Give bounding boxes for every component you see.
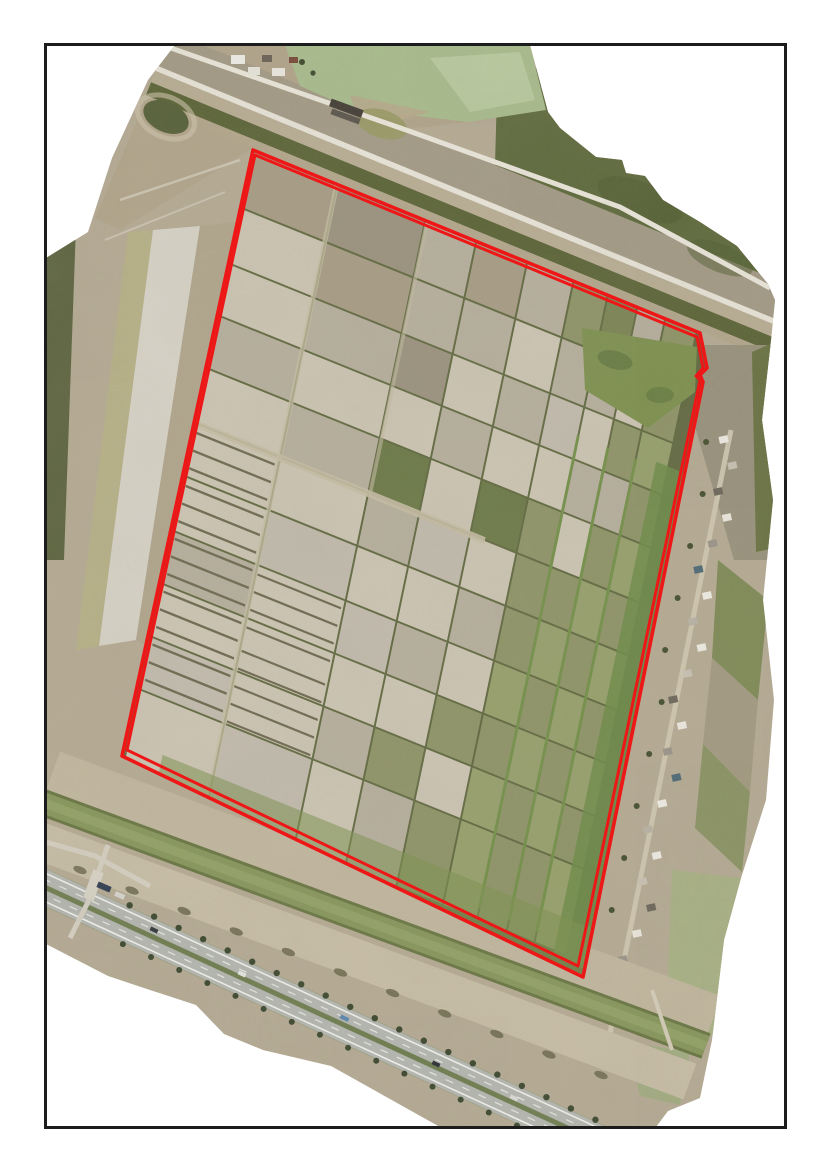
orthophoto-figure xyxy=(0,0,830,1174)
tree xyxy=(598,1161,604,1167)
orthophoto-svg xyxy=(0,0,830,1174)
tree xyxy=(570,1148,576,1154)
tree xyxy=(542,1135,548,1141)
